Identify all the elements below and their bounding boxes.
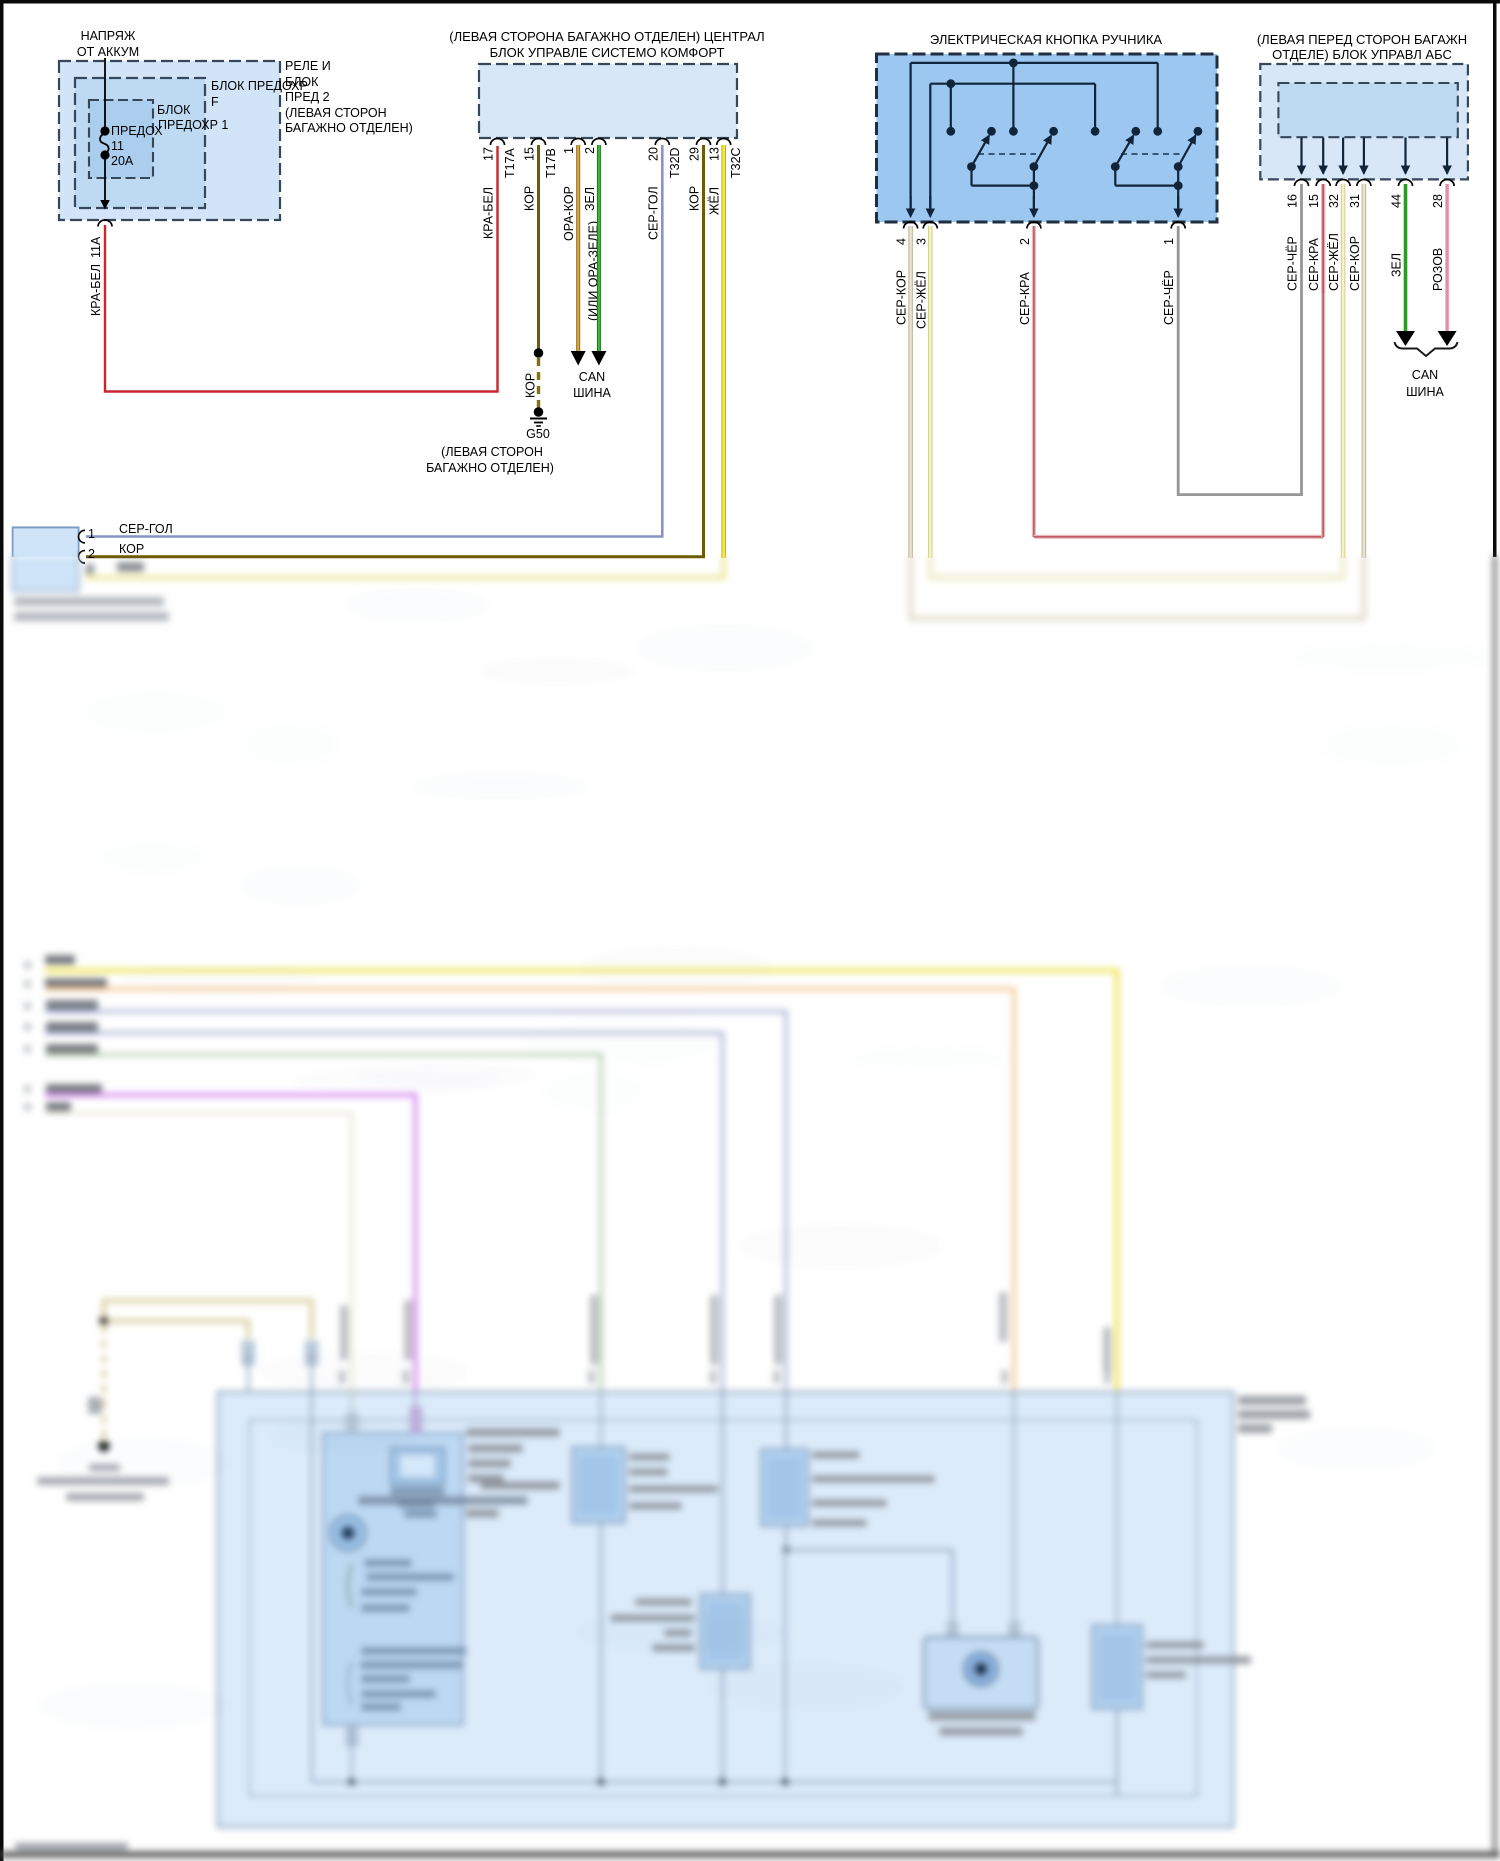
svg-text:ПРЕДОХР 1: ПРЕДОХР 1 [158, 118, 228, 132]
svg-text:СЕР-КРА: СЕР-КРА [1018, 271, 1032, 325]
svg-text:4: 4 [895, 238, 909, 245]
svg-text:СЕР-ГОЛ: СЕР-ГОЛ [119, 522, 173, 536]
svg-text:Т17В: Т17В [544, 148, 558, 178]
svg-text:БЛОК УПРАВЛЕ СИСТЕМО КОМФОРТ: БЛОК УПРАВЛЕ СИСТЕМО КОМФОРТ [490, 45, 725, 60]
svg-text:ОРА-КОР: ОРА-КОР [562, 186, 576, 241]
svg-text:КОР: КОР [524, 373, 538, 398]
svg-text:1: 1 [562, 147, 576, 154]
svg-text:Т32С: Т32С [729, 147, 743, 178]
svg-text:2: 2 [583, 147, 597, 154]
svg-text:БАГАЖНО ОТДЕЛЕН): БАГАЖНО ОТДЕЛЕН) [426, 461, 554, 475]
svg-text:15: 15 [1307, 194, 1321, 208]
svg-text:ЗЕЛ: ЗЕЛ [583, 187, 597, 211]
svg-text:СЕР-ЖЁЛ: СЕР-ЖЁЛ [914, 271, 928, 329]
svg-text:КРА-БЕЛ: КРА-БЕЛ [89, 264, 103, 316]
svg-text:17: 17 [482, 147, 496, 161]
svg-text:СЕР-КОР: СЕР-КОР [895, 270, 909, 325]
svg-text:2: 2 [1018, 238, 1032, 245]
svg-text:Т17А: Т17А [503, 147, 517, 178]
svg-text:КОР: КОР [688, 186, 702, 211]
svg-text:(ЛЕВАЯ ПЕРЕД СТОРОН БАГАЖН: (ЛЕВАЯ ПЕРЕД СТОРОН БАГАЖН [1257, 32, 1467, 47]
svg-text:ОТДЕЛЕ) БЛОК УПРАВЛ АБС: ОТДЕЛЕ) БЛОК УПРАВЛ АБС [1272, 47, 1452, 62]
svg-text:15: 15 [523, 147, 537, 161]
svg-text:КОР: КОР [119, 542, 144, 556]
svg-text:НАПРЯЖ: НАПРЯЖ [81, 29, 136, 43]
svg-text:Т32D: Т32D [668, 147, 682, 178]
svg-text:32: 32 [1327, 194, 1341, 208]
svg-text:СЕР-ЖЁЛ: СЕР-ЖЁЛ [1327, 233, 1341, 291]
svg-text:ШИНА: ШИНА [573, 386, 611, 400]
svg-text:ШИНА: ШИНА [1406, 385, 1444, 399]
svg-text:28: 28 [1431, 194, 1445, 208]
svg-text:ЖЁЛ: ЖЁЛ [708, 187, 722, 215]
svg-text:(ЛЕВАЯ СТОРОНА БАГАЖНО ОТДЕЛЕН: (ЛЕВАЯ СТОРОНА БАГАЖНО ОТДЕЛЕН) ЦЕНТРАЛ [449, 29, 764, 44]
svg-text:20А: 20А [111, 154, 134, 168]
svg-text:16: 16 [1286, 194, 1300, 208]
svg-text:СЕР-ЧЁР: СЕР-ЧЁР [1162, 270, 1176, 325]
svg-text:РОЗОВ: РОЗОВ [1431, 248, 1445, 291]
svg-text:КОР: КОР [523, 186, 537, 211]
svg-text:СЕР-ГОЛ: СЕР-ГОЛ [646, 186, 660, 240]
svg-text:ЗЕЛ: ЗЕЛ [1390, 253, 1404, 277]
svg-text:ЭЛЕКТРИЧЕСКАЯ КНОПКА РУЧНИКА: ЭЛЕКТРИЧЕСКАЯ КНОПКА РУЧНИКА [930, 32, 1162, 47]
svg-text:(ЛЕВАЯ СТОРОН: (ЛЕВАЯ СТОРОН [285, 106, 387, 120]
svg-text:(ЛЕВАЯ СТОРОН: (ЛЕВАЯ СТОРОН [441, 445, 543, 459]
svg-text:СЕР-ЧЁР: СЕР-ЧЁР [1286, 236, 1300, 291]
svg-text:СЕР-КОР: СЕР-КОР [1348, 236, 1362, 291]
svg-text:ПРЕДОХ: ПРЕДОХ [111, 124, 163, 138]
svg-text:44: 44 [1390, 194, 1404, 208]
svg-text:БЛОК ПРЕДОХР: БЛОК ПРЕДОХР [211, 79, 308, 93]
svg-text:31: 31 [1348, 194, 1362, 208]
svg-text:CAN: CAN [1412, 368, 1438, 382]
svg-text:29: 29 [688, 147, 702, 161]
svg-text:РЕЛЕ И: РЕЛЕ И [285, 59, 331, 73]
svg-text:ОТ АККУМ: ОТ АККУМ [77, 45, 139, 59]
svg-text:11: 11 [111, 139, 124, 153]
svg-text:11А: 11А [89, 236, 103, 258]
svg-text:CAN: CAN [579, 370, 605, 384]
svg-text:F: F [211, 95, 219, 109]
svg-text:БЛОК: БЛОК [157, 103, 191, 117]
svg-text:БАГАЖНО ОТДЕЛЕН): БАГАЖНО ОТДЕЛЕН) [285, 121, 413, 135]
svg-text:13: 13 [708, 147, 722, 161]
svg-text:1: 1 [88, 527, 95, 541]
svg-text:КРА-БЕЛ: КРА-БЕЛ [482, 187, 496, 239]
svg-text:20: 20 [646, 147, 660, 161]
svg-text:G50: G50 [526, 427, 550, 441]
svg-text:2: 2 [88, 547, 95, 561]
svg-text:1: 1 [1162, 238, 1176, 245]
svg-text:СЕР-КРА: СЕР-КРА [1307, 237, 1321, 291]
svg-text:3: 3 [914, 238, 928, 245]
